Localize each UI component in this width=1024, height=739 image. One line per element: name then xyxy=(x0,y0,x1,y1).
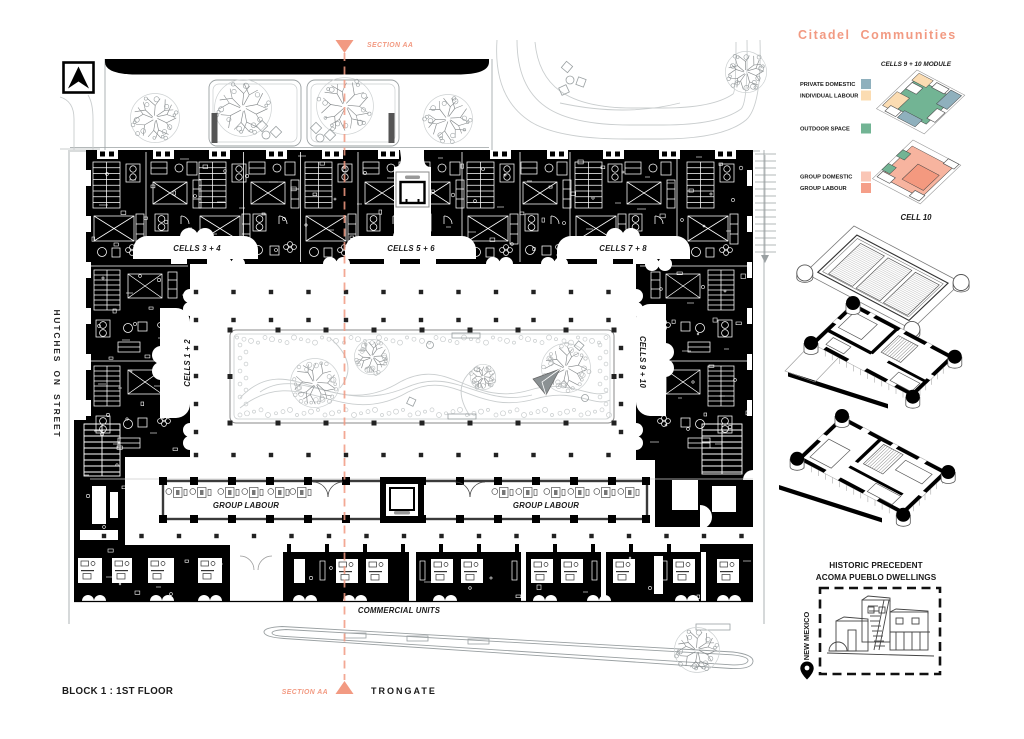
svg-text:SECTION AA: SECTION AA xyxy=(367,42,413,49)
svg-text:CELLS 9 + 10: CELLS 9 + 10 xyxy=(638,336,647,388)
svg-text:PRIVATE DOMESTIC: PRIVATE DOMESTIC xyxy=(800,82,855,88)
svg-text:COMMERCIAL UNITS: COMMERCIAL UNITS xyxy=(358,606,441,615)
svg-text:CELLS 5 + 6: CELLS 5 + 6 xyxy=(387,244,435,253)
svg-text:HISTORIC PRECEDENT: HISTORIC PRECEDENT xyxy=(829,561,923,570)
svg-text:GROUP DOMESTIC: GROUP DOMESTIC xyxy=(800,175,852,181)
svg-text:CELLS 7 + 8: CELLS 7 + 8 xyxy=(599,244,647,253)
svg-text:CELL 10: CELL 10 xyxy=(900,213,932,222)
svg-text:GROUP LABOUR: GROUP LABOUR xyxy=(213,501,279,510)
svg-text:CELLS 9 + 10 MODULE: CELLS 9 + 10 MODULE xyxy=(881,61,952,68)
svg-text:NEW MEXICO: NEW MEXICO xyxy=(802,612,811,661)
svg-text:CELLS 1 + 2: CELLS 1 + 2 xyxy=(183,339,192,387)
svg-text:GROUP LABOUR: GROUP LABOUR xyxy=(513,501,579,510)
svg-text:TRONGATE: TRONGATE xyxy=(371,686,437,696)
svg-text:OUTDOOR SPACE: OUTDOOR SPACE xyxy=(800,127,850,133)
svg-text:INDIVIDUAL LABOUR: INDIVIDUAL LABOUR xyxy=(800,94,858,100)
svg-text:BLOCK 1 : 1ST FLOOR: BLOCK 1 : 1ST FLOOR xyxy=(62,686,173,697)
svg-text:ACOMA PUEBLO DWELLINGS: ACOMA PUEBLO DWELLINGS xyxy=(816,573,937,582)
svg-text:HUTCHES ON STREET: HUTCHES ON STREET xyxy=(52,309,62,438)
svg-text:SECTION AA: SECTION AA xyxy=(282,689,328,696)
svg-text:GROUP LABOUR: GROUP LABOUR xyxy=(800,186,847,192)
svg-text:Citadel Communities: Citadel Communities xyxy=(798,28,957,42)
svg-text:CELLS 3 + 4: CELLS 3 + 4 xyxy=(173,244,221,253)
